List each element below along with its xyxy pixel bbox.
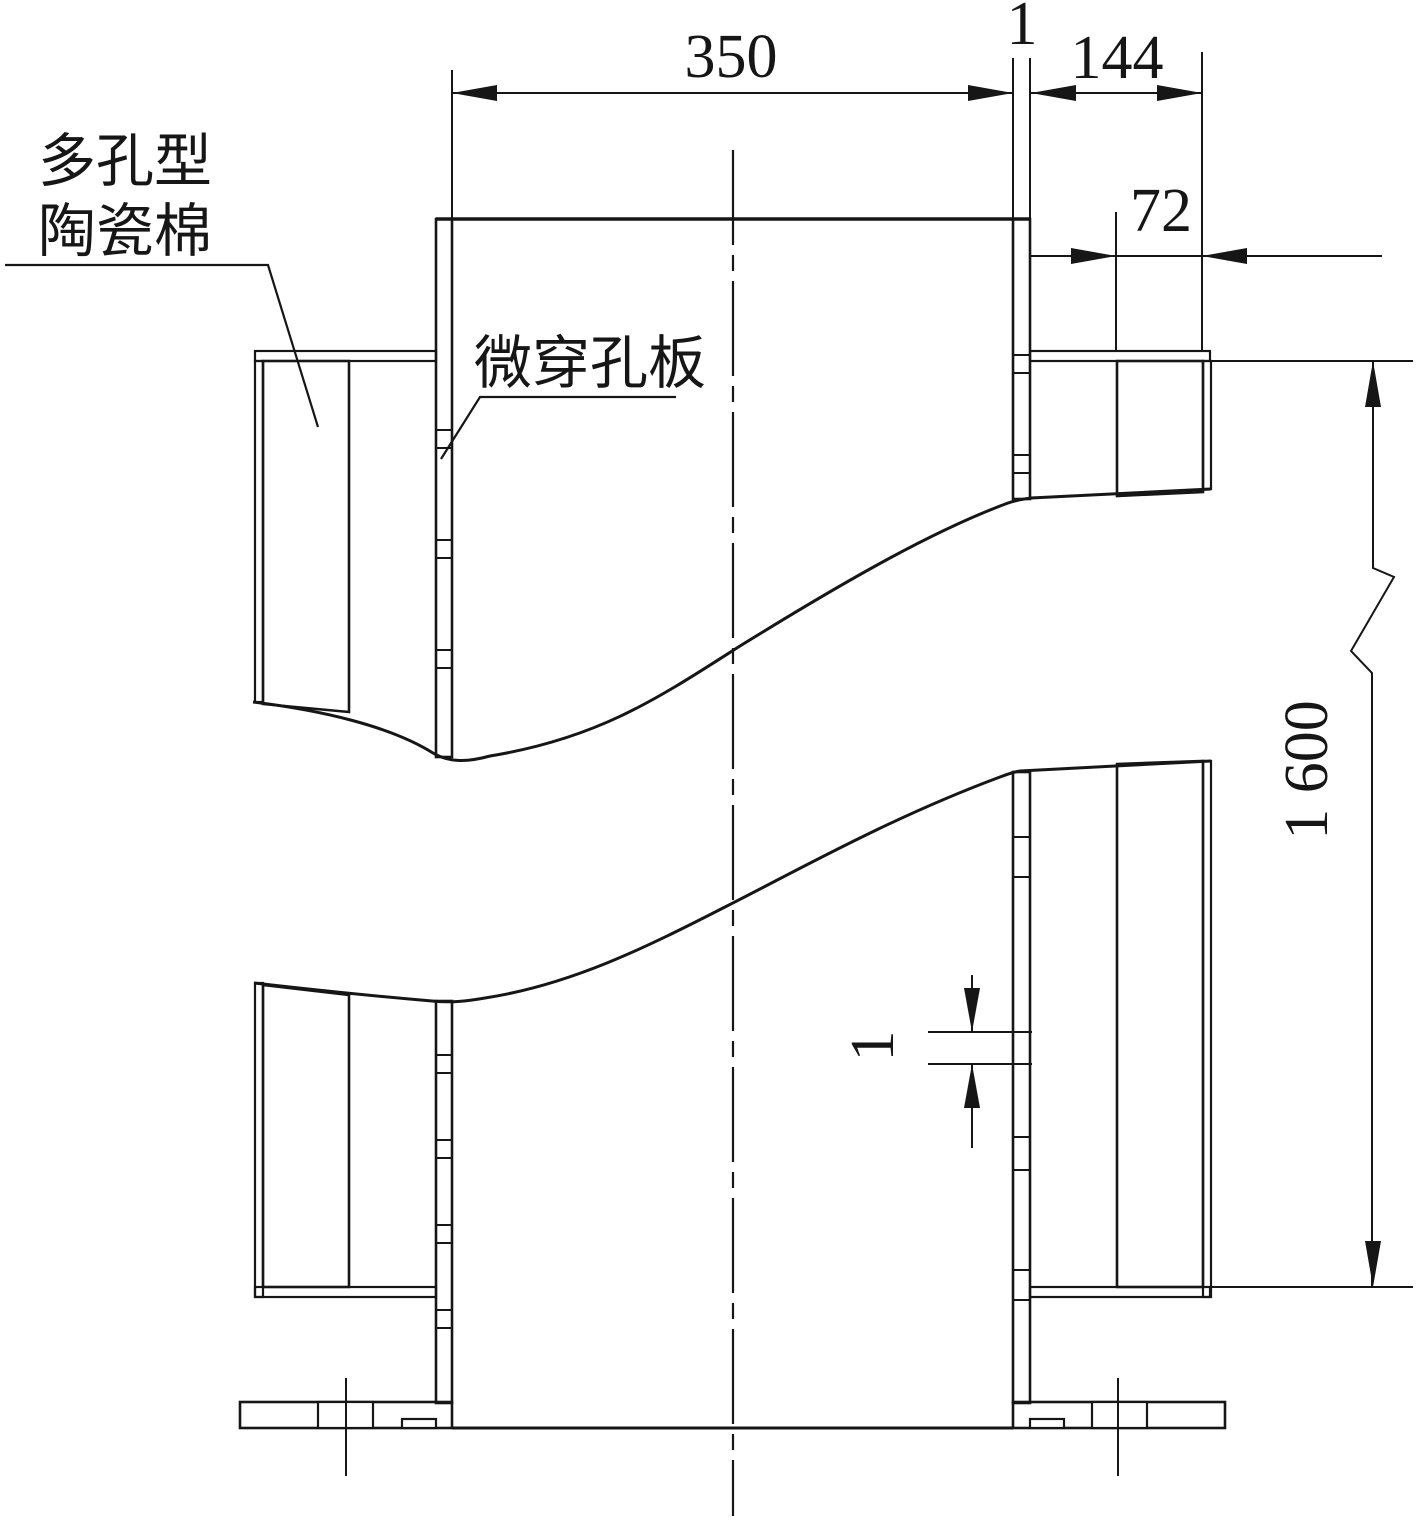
ceramic-wool-block [1117, 761, 1203, 1287]
engineering-drawing-canvas: 350 1 144 72 1 600 [0, 0, 1417, 1523]
dim-text-350: 350 [685, 23, 778, 91]
dimension-annotations: 350 1 144 72 1 600 [452, 0, 1413, 1287]
dim-duct-inner-width: 350 [452, 23, 1013, 101]
ceramic-wool-block [263, 361, 349, 712]
dim-text-1600: 1 600 [1273, 700, 1341, 840]
dim-text-panel-thickness: 1 [1007, 0, 1038, 58]
dim-perforation-size: 1 [839, 975, 1032, 1148]
label-text-line1: 多孔型 [38, 127, 212, 195]
label-porous-ceramic-wool: 多孔型 陶瓷棉 [5, 127, 318, 427]
cavity-cover [255, 1287, 436, 1297]
micro-perforated-plate-lower-right [1013, 772, 1030, 1403]
bolt-hole [1092, 1402, 1147, 1428]
label-text-line2: 陶瓷棉 [38, 197, 212, 265]
dim-text-72: 72 [1130, 177, 1192, 245]
duct-structure [240, 150, 1225, 1516]
cavity-cover [255, 351, 436, 361]
leader-line [5, 265, 318, 427]
silencer-section-drawing: 350 1 144 72 1 600 [0, 0, 1417, 1523]
dim-text-perforation: 1 [839, 1031, 907, 1062]
cavity-upper-right [1030, 351, 1211, 496]
cavity-cover [1030, 351, 1210, 361]
label-micro-perforated-panel: 微穿孔板 [441, 329, 706, 459]
label-text: 微穿孔板 [474, 329, 706, 397]
plate-foot [402, 1419, 436, 1428]
cavity-upper-left [255, 351, 436, 712]
plate-foot [1030, 1419, 1064, 1428]
dim-section-height: 1 600 [1273, 361, 1394, 1287]
leader-line [441, 397, 676, 459]
cavity-cover [1030, 1287, 1210, 1297]
ceramic-wool-block [1117, 361, 1203, 496]
micro-perforated-plate-lower-left [436, 1001, 452, 1403]
dim-text-144: 144 [1071, 24, 1164, 92]
micro-perforated-plate-upper-left [436, 219, 452, 757]
cavity-lower-right [1030, 761, 1211, 1297]
dim-wool-layer-depth: 72 [1030, 177, 1382, 264]
dim-side-cavity-depth: 144 [1030, 24, 1202, 101]
ceramic-wool-block [263, 985, 349, 1287]
micro-perforated-plate-upper-right [1013, 219, 1030, 499]
callout-labels: 多孔型 陶瓷棉 微穿孔板 [5, 127, 706, 459]
cavity-lower-left [255, 983, 436, 1297]
